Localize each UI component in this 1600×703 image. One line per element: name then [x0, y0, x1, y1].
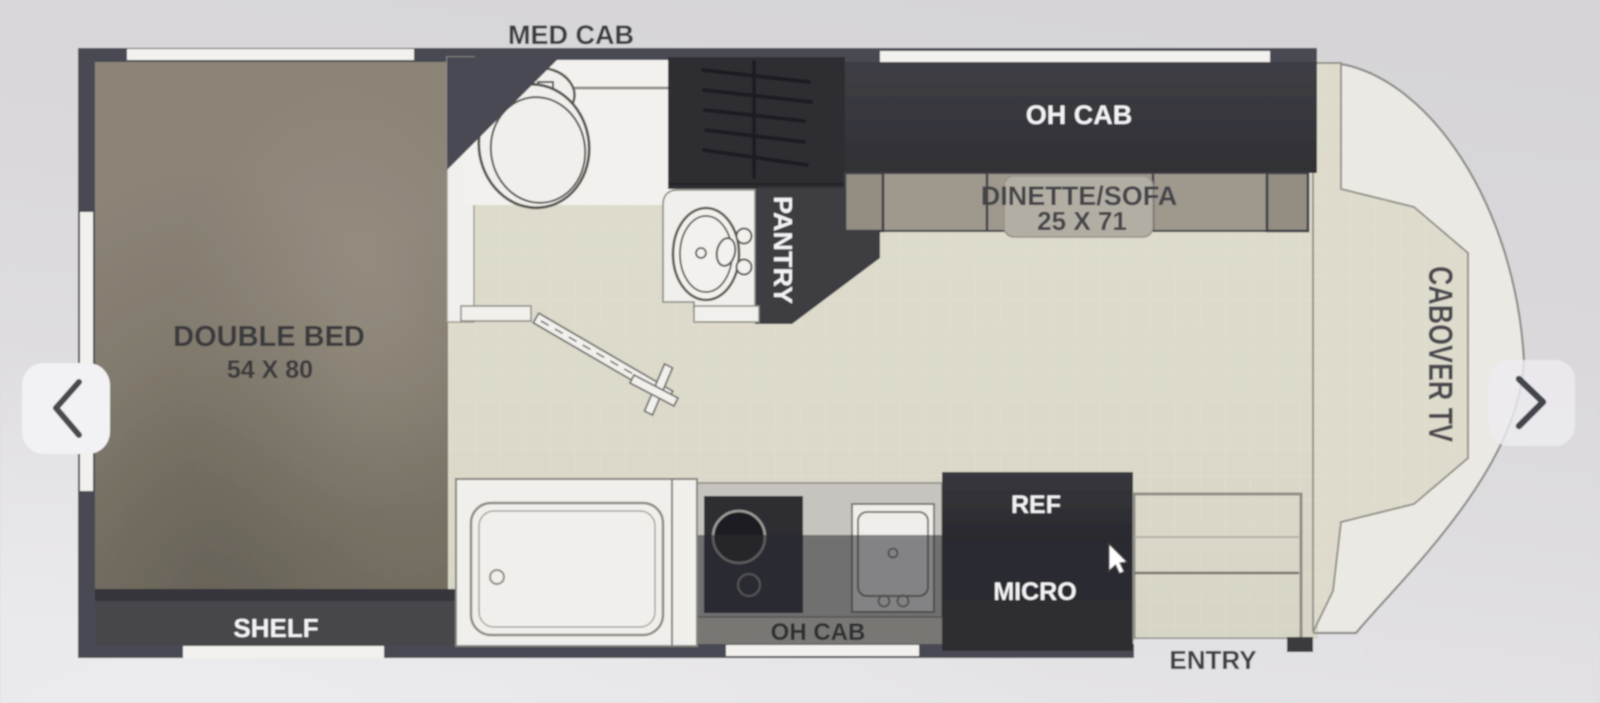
svg-text:CABOVER TV: CABOVER TV	[1421, 266, 1459, 442]
svg-text:OH CAB: OH CAB	[771, 619, 866, 646]
svg-text:MICRO: MICRO	[993, 578, 1076, 606]
svg-text:MED CAB: MED CAB	[508, 20, 634, 50]
svg-text:SHELF: SHELF	[233, 613, 318, 643]
svg-text:PANTRY: PANTRY	[768, 196, 798, 304]
svg-text:25 X 71: 25 X 71	[1037, 206, 1127, 236]
svg-text:DOUBLE BED: DOUBLE BED	[173, 321, 365, 353]
svg-text:REF: REF	[1011, 491, 1061, 519]
svg-text:54 X 80: 54 X 80	[227, 356, 313, 384]
svg-text:ENTRY: ENTRY	[1169, 645, 1256, 675]
svg-text:OH CAB: OH CAB	[1026, 100, 1133, 130]
